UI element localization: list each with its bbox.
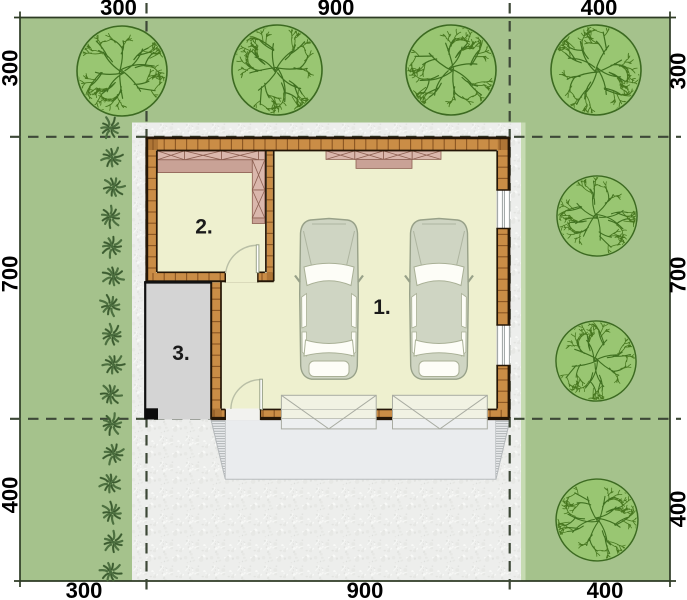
svg-text:900: 900 — [318, 0, 355, 20]
svg-text:400: 400 — [581, 0, 618, 20]
svg-text:400: 400 — [587, 578, 624, 600]
svg-text:2.: 2. — [195, 216, 213, 239]
svg-text:300: 300 — [666, 53, 687, 90]
svg-text:300: 300 — [0, 50, 23, 87]
svg-text:700: 700 — [666, 257, 687, 294]
svg-text:400: 400 — [0, 477, 23, 514]
svg-text:1.: 1. — [373, 296, 391, 319]
svg-text:300: 300 — [66, 578, 103, 600]
svg-text:300: 300 — [100, 0, 137, 20]
svg-text:400: 400 — [666, 491, 687, 528]
svg-text:900: 900 — [347, 578, 384, 600]
svg-text:700: 700 — [0, 256, 23, 293]
svg-text:3.: 3. — [172, 342, 190, 365]
